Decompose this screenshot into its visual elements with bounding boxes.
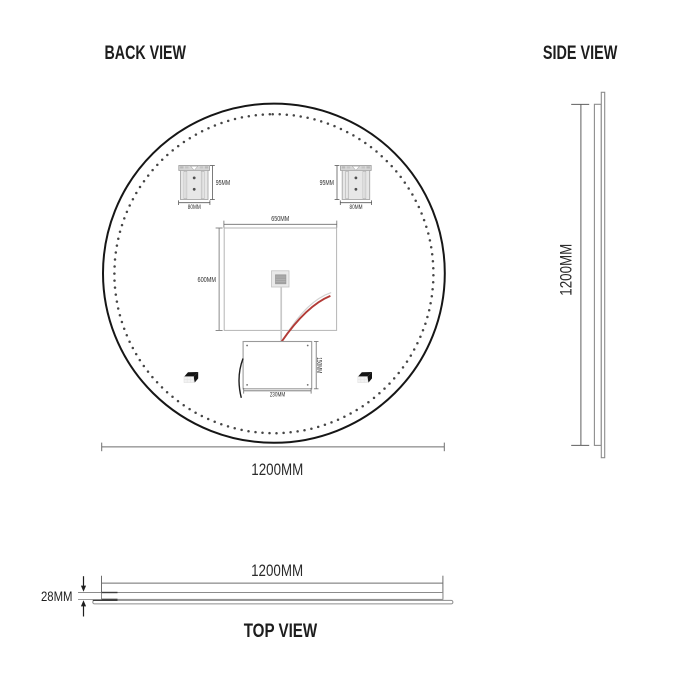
svg-text:95MM: 95MM (216, 178, 230, 187)
svg-text:80MM: 80MM (188, 204, 201, 211)
svg-text:28MM: 28MM (41, 589, 73, 604)
svg-text:150MM: 150MM (315, 357, 322, 373)
svg-text:230MM: 230MM (270, 391, 286, 398)
svg-text:600MM: 600MM (198, 275, 217, 284)
svg-text:1200MM: 1200MM (558, 244, 576, 296)
svg-text:1200MM: 1200MM (251, 562, 303, 580)
svg-text:SIDE VIEW: SIDE VIEW (543, 42, 618, 64)
svg-text:95MM: 95MM (320, 178, 334, 187)
svg-text:80MM: 80MM (350, 204, 363, 211)
svg-text:650MM: 650MM (271, 214, 289, 223)
svg-text:TOP VIEW: TOP VIEW (244, 620, 318, 642)
svg-text:BACK VIEW: BACK VIEW (105, 42, 187, 64)
svg-text:1200MM: 1200MM (251, 461, 303, 479)
